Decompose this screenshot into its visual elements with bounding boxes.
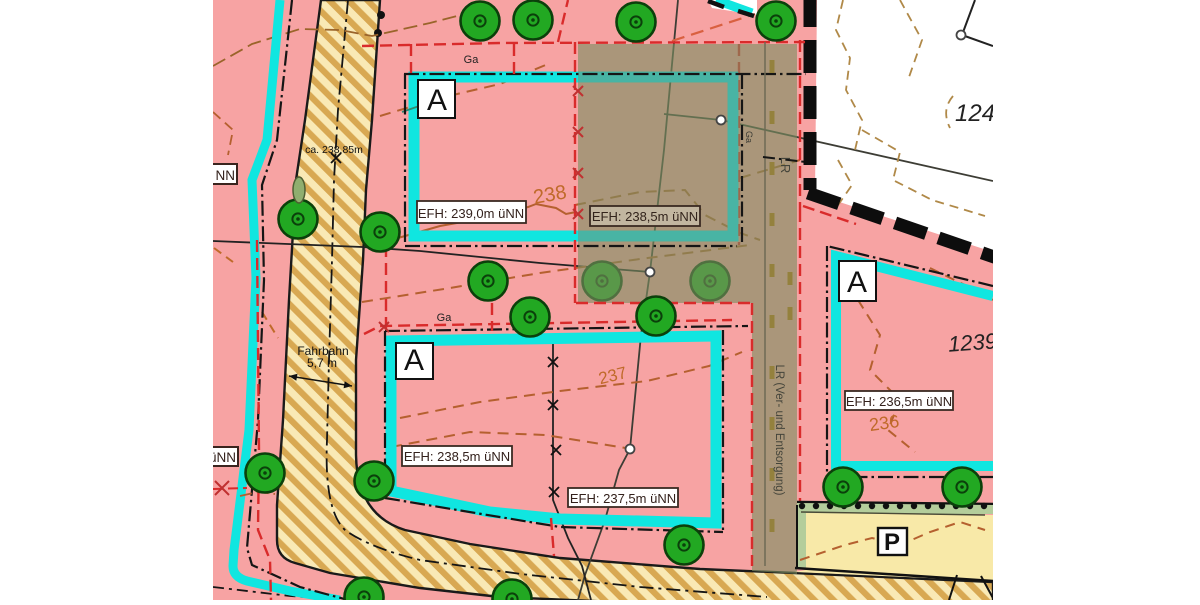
svg-text:Ga: Ga xyxy=(464,54,480,66)
svg-text:üNN: üNN xyxy=(209,450,236,465)
svg-text:EFH: 239,0m üNN: EFH: 239,0m üNN xyxy=(418,206,524,221)
svg-text:1239: 1239 xyxy=(947,328,998,356)
svg-text:A: A xyxy=(427,84,447,117)
svg-text:P: P xyxy=(884,529,900,556)
svg-text:LR: LR xyxy=(778,157,793,174)
svg-text:NN: NN xyxy=(216,168,236,183)
svg-text:ca. 238,85m: ca. 238,85m xyxy=(305,144,363,156)
svg-text:LR (Ver- und Entsorgung): LR (Ver- und Entsorgung) xyxy=(773,364,785,495)
svg-text:EFH: 238,5m üNN: EFH: 238,5m üNN xyxy=(592,209,698,224)
svg-text:A: A xyxy=(847,266,867,299)
svg-text:A: A xyxy=(404,344,424,377)
svg-text:1240: 1240 xyxy=(955,100,1009,127)
svg-text:5,7 m: 5,7 m xyxy=(307,356,337,370)
svg-text:Ga: Ga xyxy=(744,131,754,143)
svg-text:EFH: 236,5m üNN: EFH: 236,5m üNN xyxy=(846,394,952,409)
svg-text:EFH: 238,5m üNN: EFH: 238,5m üNN xyxy=(404,449,510,464)
svg-text:236: 236 xyxy=(868,411,901,435)
svg-text:Ga: Ga xyxy=(437,312,453,324)
svg-text:EFH: 237,5m üNN: EFH: 237,5m üNN xyxy=(570,491,676,506)
